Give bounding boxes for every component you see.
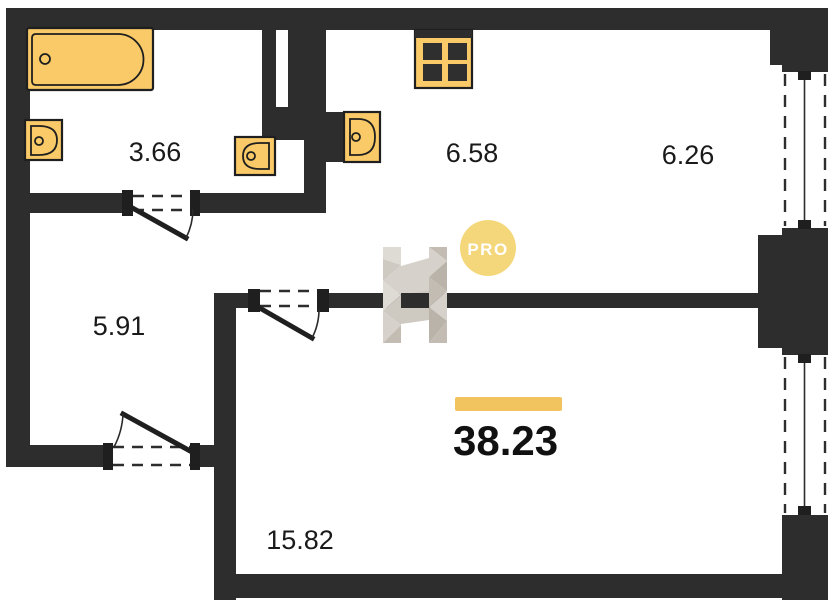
- wall-right-mid-block: [758, 235, 828, 348]
- toilet-sink-icon: [235, 137, 275, 175]
- stove-icon: [415, 30, 472, 88]
- wall-bathroom-bottom-left: [6, 193, 122, 213]
- stove-burner: [448, 43, 467, 60]
- door-jamb: [190, 443, 200, 470]
- door-leaf: [258, 307, 312, 338]
- pro-badge: PRO: [460, 220, 516, 276]
- door-jamb: [122, 190, 133, 216]
- window-cap: [798, 71, 811, 80]
- wall-right-bottom-block: [782, 522, 828, 600]
- door-bathroom: [122, 190, 200, 238]
- floor-plan: PRO 3.66 6.58 6.26 5.91 15.82 38.23: [0, 0, 831, 600]
- wall-bottom: [214, 574, 828, 598]
- window-sill-bottom-2: [782, 515, 828, 522]
- window-cap: [798, 220, 811, 229]
- wall-kitchen-lower: [304, 107, 326, 197]
- door-jamb: [190, 190, 200, 216]
- bathtub-icon: [27, 28, 153, 90]
- wall-through-watermark: [401, 293, 429, 308]
- area-label-living-room: 15.82: [266, 525, 334, 555]
- window-cap: [798, 354, 811, 363]
- wall-hallway-bottom-right: [200, 445, 236, 467]
- total-area-label: 38.23: [453, 417, 558, 464]
- area-label-bathroom: 3.66: [129, 137, 182, 167]
- door-entry: [103, 414, 200, 470]
- wall-kitchen-upper: [288, 22, 326, 107]
- window-bottom: [785, 354, 825, 515]
- window-sill-top-2: [782, 348, 828, 355]
- stove-back-edge: [415, 30, 472, 38]
- pro-badge-label: PRO: [467, 240, 508, 259]
- bathtub-outline: [27, 28, 153, 90]
- kitchen-sink-counter: [326, 112, 344, 162]
- stove-burner: [448, 64, 467, 81]
- window-cap: [798, 506, 811, 515]
- bathroom-sink-icon: [25, 120, 62, 160]
- wall-top-right-corner: [770, 8, 828, 65]
- window-top: [785, 71, 825, 229]
- wall-hallway-bottom-left: [6, 445, 103, 467]
- door-jamb: [103, 443, 113, 470]
- stove-burner: [423, 43, 442, 60]
- door-living-room: [248, 289, 329, 338]
- watermark-h-icon: [383, 247, 447, 343]
- door-swing-arc: [114, 414, 123, 447]
- stove-burner: [423, 64, 442, 81]
- wall-top: [6, 8, 828, 30]
- room-area-labels: 3.66 6.58 6.26 5.91 15.82 38.23: [93, 137, 715, 555]
- door-jamb: [317, 289, 329, 312]
- total-area-accent-bar: [455, 397, 562, 411]
- area-label-room: 6.26: [662, 140, 715, 170]
- kitchen-sink-icon: [344, 112, 380, 162]
- window-sill-top-1: [782, 65, 828, 72]
- door-swing-arc: [312, 309, 319, 338]
- area-label-hallway: 5.91: [93, 311, 146, 341]
- area-label-kitchen: 6.58: [446, 138, 499, 168]
- window-sill-bottom-1: [782, 228, 828, 235]
- floor-plan-page: PRO 3.66 6.58 6.26 5.91 15.82 38.23: [0, 0, 831, 600]
